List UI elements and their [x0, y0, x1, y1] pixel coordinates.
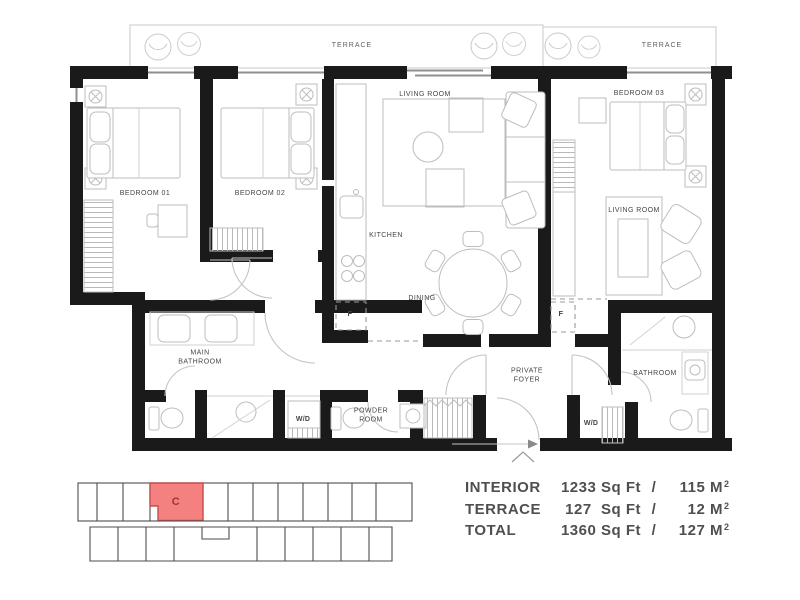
- key-plan: [78, 483, 412, 561]
- key-plan-unit-label: C: [172, 496, 180, 508]
- area-row-imperial: 1233 Sq Ft: [549, 479, 641, 496]
- area-row-total: TOTAL 1360 Sq Ft / 127 M 2: [465, 522, 730, 544]
- bedroom-03-label: BEDROOM 03: [614, 90, 664, 99]
- area-row-separator: /: [641, 501, 667, 518]
- dining-label: DINING: [408, 295, 435, 304]
- bedroom-01-label: BEDROOM 01: [120, 190, 170, 199]
- terrace-right-label: TERRACE: [642, 42, 682, 51]
- floor-plan-page: TERRACE TERRACE BEDROOM 01 BEDROOM 02 LI…: [0, 0, 800, 600]
- terrace-left-label: TERRACE: [332, 42, 372, 51]
- living-room-label: LIVING ROOM: [399, 91, 451, 100]
- second-living-room-label: LIVING ROOM: [608, 207, 660, 216]
- area-row-imperial: 1360 Sq Ft: [549, 522, 641, 539]
- washer-dryer-left-label: W/D: [296, 416, 310, 425]
- kitchen-fixtures: [336, 84, 366, 300]
- dining-furniture: [424, 232, 523, 335]
- washer-dryer-right-label: W/D: [584, 420, 598, 429]
- living-room-furniture: [383, 91, 545, 228]
- area-row-label: TERRACE: [465, 501, 549, 518]
- area-row-separator: /: [641, 479, 667, 496]
- area-table: INTERIOR 1233 Sq Ft / 115 M 2 TERRACE 12…: [465, 479, 730, 544]
- foyer-closet: [424, 398, 472, 438]
- area-row-metric: 127 M: [667, 522, 723, 539]
- powder-room-label: POWDER ROOM: [354, 408, 388, 425]
- bathroom-label: BATHROOM: [633, 370, 677, 379]
- area-row-label: INTERIOR: [465, 479, 549, 496]
- kitchen-label: KITCHEN: [369, 232, 403, 241]
- main-bathroom-label: MAIN BATHROOM: [178, 350, 222, 367]
- area-row-metric-sup: 2: [724, 479, 730, 489]
- area-row-interior: INTERIOR 1233 Sq Ft / 115 M 2: [465, 479, 730, 501]
- area-row-metric: 115 M: [667, 479, 723, 496]
- bedroom-02-label: BEDROOM 02: [235, 190, 285, 199]
- fridge-right-label: F: [558, 310, 563, 319]
- area-row-metric-sup: 2: [724, 501, 730, 511]
- area-row-imperial: 127 Sq Ft: [549, 501, 641, 518]
- private-foyer-label: PRIVATE FOYER: [511, 368, 543, 385]
- bedroom-02-furniture: [210, 84, 317, 251]
- fridge-left-label: F: [347, 310, 352, 319]
- area-row-separator: /: [641, 522, 667, 539]
- terrace-outlines: [130, 25, 716, 68]
- area-row-label: TOTAL: [465, 522, 549, 539]
- area-row-terrace: TERRACE 127 Sq Ft / 12 M 2: [465, 501, 730, 523]
- area-row-metric-sup: 2: [724, 522, 730, 532]
- area-row-metric: 12 M: [667, 501, 723, 518]
